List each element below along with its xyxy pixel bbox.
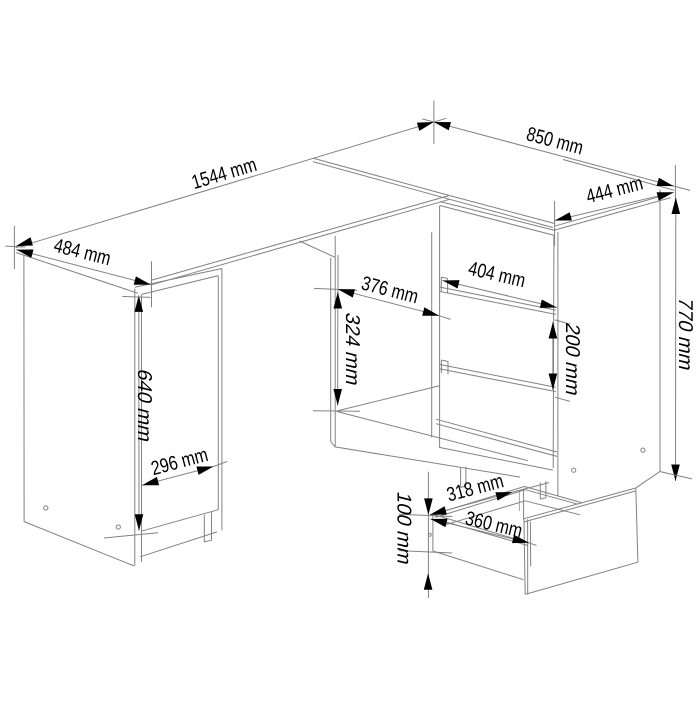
svg-text:100 mm: 100 mm bbox=[393, 490, 415, 568]
svg-text:200 mm: 200 mm bbox=[561, 321, 583, 399]
svg-text:770 mm: 770 mm bbox=[674, 295, 696, 373]
svg-text:640 mm: 640 mm bbox=[133, 367, 155, 445]
svg-text:324 mm: 324 mm bbox=[341, 311, 363, 389]
